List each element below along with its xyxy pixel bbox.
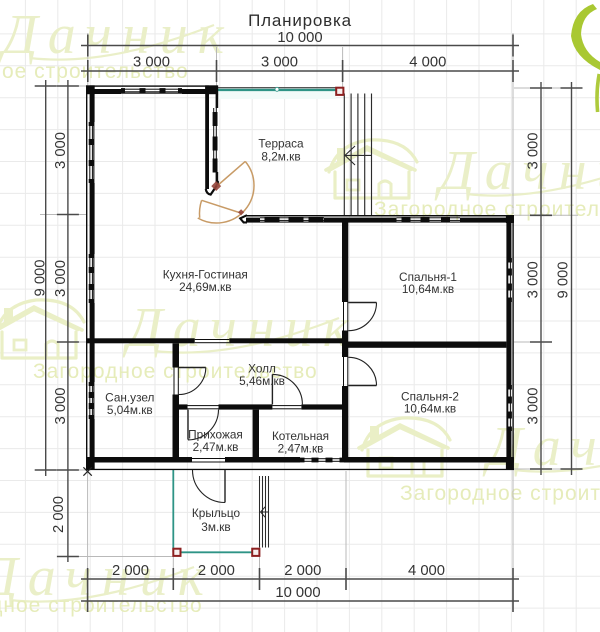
svg-text:3м.кв: 3м.кв: [201, 520, 230, 534]
svg-text:4 000: 4 000: [408, 563, 445, 579]
svg-text:2,47м.кв: 2,47м.кв: [278, 441, 324, 455]
svg-text:8,2м.кв: 8,2м.кв: [261, 149, 300, 163]
svg-text:3 000: 3 000: [525, 261, 541, 298]
svg-text:24,69м.кв: 24,69м.кв: [179, 280, 231, 294]
svg-text:9 000: 9 000: [556, 261, 572, 298]
svg-text:2 000: 2 000: [112, 563, 149, 579]
svg-text:10,64м.кв: 10,64м.кв: [402, 282, 454, 296]
svg-text:10 000: 10 000: [277, 30, 322, 46]
svg-text:9 000: 9 000: [33, 259, 49, 296]
svg-text:2 000: 2 000: [284, 563, 321, 579]
svg-text:2,47м.кв: 2,47м.кв: [193, 440, 239, 454]
svg-text:10,64м.кв: 10,64м.кв: [404, 402, 456, 416]
svg-text:3 000: 3 000: [53, 387, 69, 424]
svg-text:2 000: 2 000: [198, 563, 235, 579]
svg-text:Загородное строительство: Загородное строительство: [0, 594, 203, 617]
svg-text:5,46м.кв: 5,46м.кв: [239, 374, 285, 388]
svg-text:3 000: 3 000: [53, 260, 69, 297]
svg-text:3 000: 3 000: [53, 132, 69, 169]
svg-text:10 000: 10 000: [275, 585, 320, 601]
svg-text:4 000: 4 000: [409, 55, 446, 71]
svg-text:Крыльцо: Крыльцо: [192, 506, 241, 520]
svg-text:3 000: 3 000: [261, 55, 298, 71]
svg-text:3 000: 3 000: [133, 55, 170, 71]
svg-text:2 000: 2 000: [51, 496, 67, 533]
svg-text:5,04м.кв: 5,04м.кв: [107, 403, 153, 417]
svg-text:3 000: 3 000: [525, 132, 541, 169]
svg-text:Планировка: Планировка: [248, 11, 352, 30]
svg-text:3 000: 3 000: [525, 387, 541, 424]
svg-text:Загородное строительство: Загородное строительство: [400, 482, 600, 505]
